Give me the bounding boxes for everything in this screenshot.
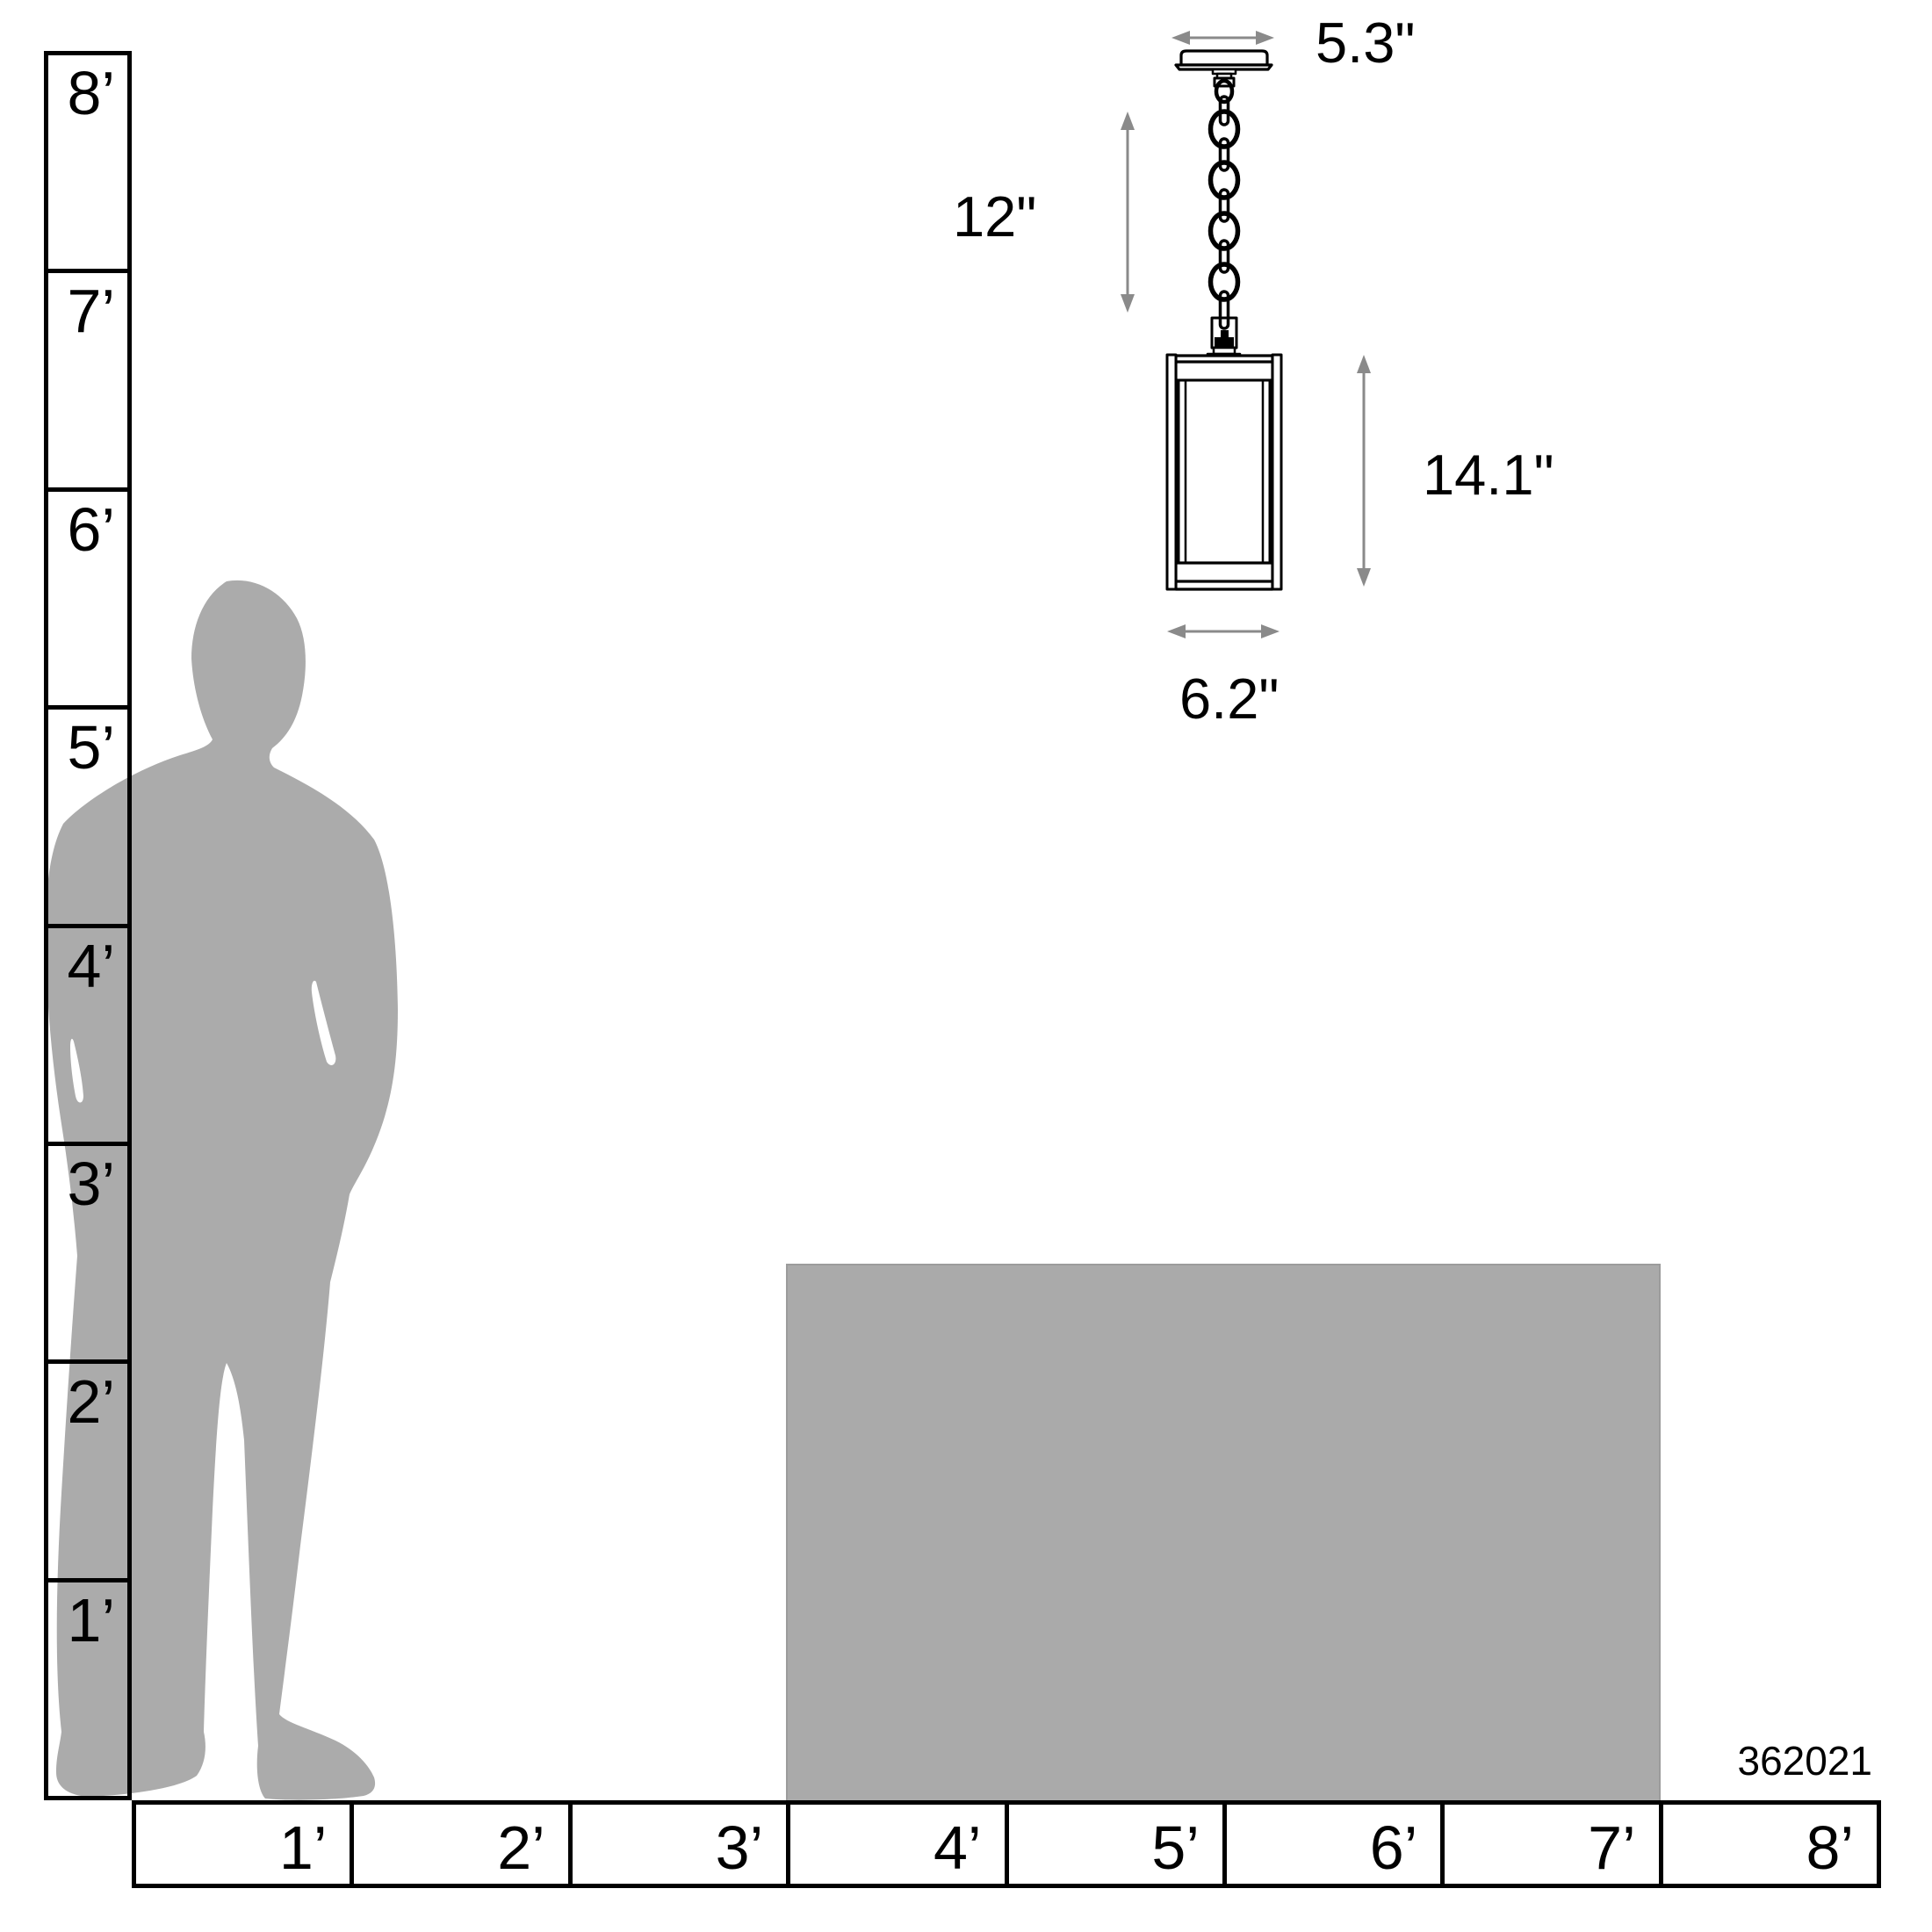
ruler-mark-5ft: 5’ xyxy=(48,705,127,923)
ruler-mark-3ft: 3’ xyxy=(568,1805,786,1884)
chain-length-arrow xyxy=(1121,112,1135,313)
ruler-mark-5ft: 5’ xyxy=(1005,1805,1222,1884)
ruler-mark-2ft: 2’ xyxy=(350,1805,567,1884)
ruler-mark-7ft: 7’ xyxy=(48,269,127,487)
horizontal-ruler: 1’ 2’ 3’ 4’ 5’ 6’ 7’ 8’ xyxy=(132,1800,1881,1888)
ruler-mark-6ft: 6’ xyxy=(1222,1805,1440,1884)
canopy-width-label: 5.3" xyxy=(1316,9,1415,77)
chain-link xyxy=(1211,264,1238,299)
ruler-mark-4ft: 4’ xyxy=(786,1805,1004,1884)
chain-link xyxy=(1211,162,1238,198)
ruler-mark-7ft: 7’ xyxy=(1440,1805,1658,1884)
ruler-mark-1ft: 1’ xyxy=(48,1578,127,1796)
fixture-width-label: 6.2" xyxy=(1179,665,1279,733)
ruler-mark-6ft: 6’ xyxy=(48,487,127,705)
chain xyxy=(1207,97,1240,361)
scene-graphics xyxy=(0,0,1932,1932)
fixture-width-arrow xyxy=(1167,624,1280,638)
canopy-width-arrow xyxy=(1171,31,1274,45)
scale-diagram: 8’ 7’ 6’ 5’ 4’ 3’ 2’ 1’ 1’ 2’ 3’ 4’ 5’ 6… xyxy=(0,0,1932,1932)
lantern-body xyxy=(1167,355,1281,589)
product-number: 362021 xyxy=(1616,1737,1872,1785)
canopy xyxy=(1176,51,1272,102)
vertical-ruler: 8’ 7’ 6’ 5’ 4’ 3’ 2’ 1’ xyxy=(44,51,132,1800)
ruler-mark-4ft: 4’ xyxy=(48,924,127,1142)
lantern-left-rail xyxy=(1167,355,1176,589)
ruler-mark-2ft: 2’ xyxy=(48,1359,127,1577)
lantern-right-rail xyxy=(1272,355,1281,589)
ruler-mark-3ft: 3’ xyxy=(48,1142,127,1359)
chain-link xyxy=(1211,213,1238,249)
ruler-mark-1ft: 1’ xyxy=(136,1805,350,1884)
pendant-fixture xyxy=(1167,51,1281,589)
table-shape xyxy=(787,1265,1660,1802)
fixture-height-label: 14.1" xyxy=(1423,441,1554,509)
ruler-mark-8ft: 8’ xyxy=(1659,1805,1877,1884)
chain-link xyxy=(1211,112,1238,147)
ruler-mark-8ft: 8’ xyxy=(48,55,127,269)
chain-length-label: 12" xyxy=(953,183,1036,251)
fixture-height-arrow xyxy=(1357,355,1371,587)
